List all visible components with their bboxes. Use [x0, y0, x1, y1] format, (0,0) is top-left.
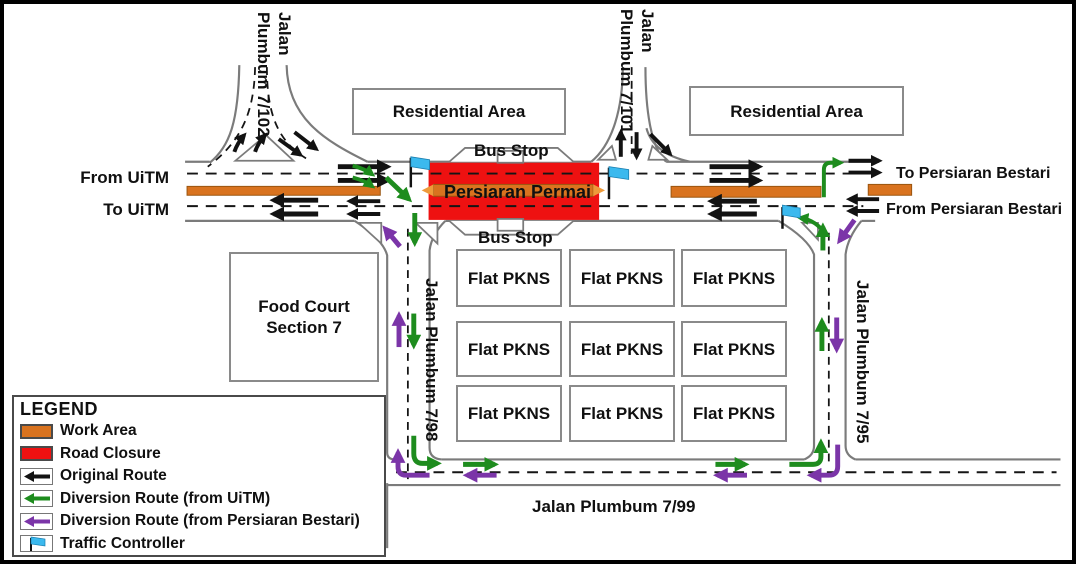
bus-stop-bottom-label: Bus Stop	[478, 228, 553, 248]
legend-item-work-area: Work Area	[20, 420, 384, 443]
flat-pkns-block: Flat PKNS	[456, 249, 562, 307]
flat-pkns-block: Flat PKNS	[569, 321, 675, 377]
jalan-plumbum-7-99-label: Jalan Plumbum 7/99	[532, 497, 695, 517]
from-persiaran-bestari-label: From Persiaran Bestari	[886, 201, 1062, 219]
flat-pkns-block: Flat PKNS	[456, 385, 562, 442]
residential-area-2: Residential Area	[689, 86, 904, 136]
food-court-section-7: Food Court Section 7	[229, 252, 379, 382]
residential-area-1: Residential Area	[352, 88, 566, 135]
to-uitm-label: To UiTM	[74, 200, 169, 220]
legend-item-diversion-uitm: Diversion Route (from UiTM)	[20, 488, 384, 511]
legend-item-road-closure: Road Closure	[20, 443, 384, 466]
legend-item-original-route: Original Route	[20, 465, 384, 488]
diversion-bestari-arrow-icon	[20, 513, 53, 530]
flat-pkns-block: Flat PKNS	[569, 249, 675, 307]
flat-pkns-block: Flat PKNS	[681, 249, 787, 307]
diversion-uitm-arrow-icon	[20, 490, 53, 507]
road-closure-swatch	[20, 446, 53, 461]
from-uitm-label: From UiTM	[74, 168, 169, 188]
legend: LEGEND Work Area Road Closure Original R…	[12, 395, 386, 557]
traffic-diversion-map: From UiTM To UiTM To Persiaran Bestari F…	[0, 0, 1076, 564]
persiaran-permai-label: Persiaran Permai	[431, 182, 604, 203]
jalan-plumbum-7-102-label: Jalan Plumbum 7/102	[253, 12, 295, 152]
jalan-plumbum-7-101-label: Jalan Plumbum 7/101	[616, 9, 658, 149]
jalan-plumbum-7-98-label: Jalan Plumbum 7/98	[422, 278, 442, 444]
jalan-plumbum-7-95-label: Jalan Plumbum 7/95	[853, 280, 873, 446]
legend-title: LEGEND	[20, 399, 384, 420]
traffic-controller-flag-icon	[20, 535, 53, 552]
flat-pkns-block: Flat PKNS	[456, 321, 562, 377]
to-persiaran-bestari-label: To Persiaran Bestari	[896, 165, 1050, 183]
legend-item-diversion-bestari: Diversion Route (from Persiaran Bestari)	[20, 510, 384, 533]
work-area-swatch	[20, 424, 53, 439]
bus-stop-top-label: Bus Stop	[474, 141, 549, 161]
original-route-arrow-icon	[20, 468, 53, 485]
legend-item-traffic-controller: Traffic Controller	[20, 533, 384, 556]
flat-pkns-block: Flat PKNS	[681, 321, 787, 377]
flat-pkns-block: Flat PKNS	[681, 385, 787, 442]
flat-pkns-block: Flat PKNS	[569, 385, 675, 442]
